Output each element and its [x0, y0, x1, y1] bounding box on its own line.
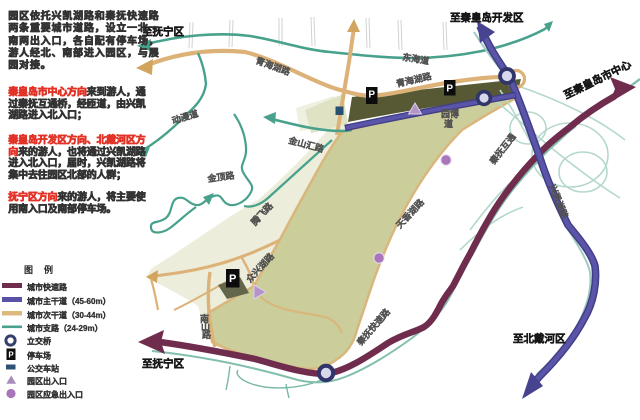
svg-text:园博: 园博 — [441, 108, 459, 119]
svg-text:P: P — [368, 90, 375, 101]
svg-text:例: 例 — [44, 264, 53, 275]
svg-text:城市主干道（45-60m）: 城市主干道（45-60m） — [27, 296, 111, 306]
svg-text:P: P — [229, 273, 236, 285]
svg-text:P: P — [8, 351, 14, 360]
svg-text:路: 路 — [202, 329, 212, 340]
svg-text:公交车站: 公交车站 — [27, 364, 59, 374]
svg-text:P: P — [446, 84, 453, 95]
svg-text:至秦皇岛开发区: 至秦皇岛开发区 — [450, 11, 524, 24]
svg-text:道: 道 — [444, 118, 453, 129]
svg-text:至抚宁区: 至抚宁区 — [142, 357, 184, 370]
svg-text:城市快速路: 城市快速路 — [27, 282, 68, 292]
svg-text:园区出入口: 园区出入口 — [27, 376, 67, 386]
svg-text:城市次干道（30-44m）: 城市次干道（30-44m） — [27, 310, 111, 320]
svg-text:立交桥: 立交桥 — [27, 336, 52, 346]
svg-text:图: 图 — [24, 265, 33, 275]
svg-text:停车场: 停车场 — [27, 351, 51, 361]
svg-text:至北戴河区: 至北戴河区 — [513, 332, 566, 345]
svg-text:园区应急出入口: 园区应急出入口 — [27, 390, 83, 400]
svg-text:城市支路（24-29m）: 城市支路（24-29m） — [27, 323, 103, 333]
